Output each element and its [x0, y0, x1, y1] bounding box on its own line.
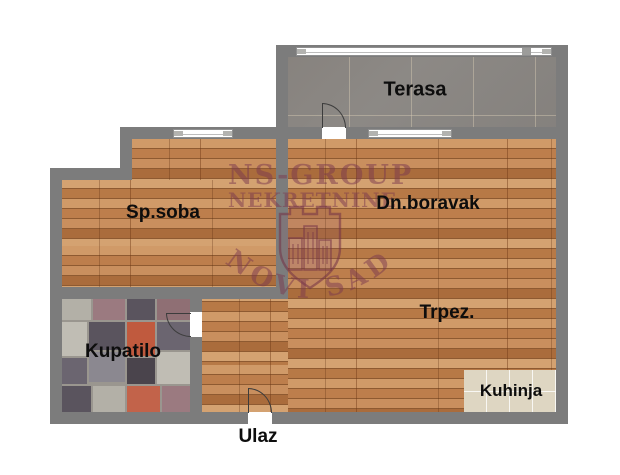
room-label-kupatilo: Kupatilo [85, 341, 161, 363]
room-label-terasa: Terasa [383, 79, 446, 102]
wall-bottom [50, 412, 568, 424]
wall-notch-horizontal [50, 168, 132, 180]
bath-tile [93, 386, 125, 412]
bath-tile [93, 299, 125, 320]
room-label-kuhinja: Kuhinja [480, 381, 542, 401]
bath-tile [162, 386, 190, 412]
window-mid-line [369, 134, 451, 135]
window-divider [522, 48, 531, 55]
terrace-window [296, 47, 552, 56]
bath-tile [62, 358, 87, 384]
bedroom-window [173, 129, 233, 138]
bath-tile [127, 386, 160, 412]
bath-tile [62, 322, 87, 356]
watermark-agency-name: NS-GROUP [228, 160, 394, 191]
floor-plan: NS-GROUP NEKRETNINE NOVI SAD Terasa Sp.s… [0, 0, 620, 475]
watermark-agency-sub: NEKRETNINE [228, 188, 394, 212]
terrace-door-opening [322, 127, 346, 139]
bath-tile [62, 299, 91, 320]
bath-tile [157, 352, 190, 384]
window-end-cap [174, 131, 183, 136]
window-end-cap [297, 49, 306, 54]
window-mid-line [297, 52, 551, 53]
entrance-door-opening [248, 412, 272, 424]
room-label-ulaz: Ulaz [238, 426, 277, 448]
room-label-dn-boravak: Dn.boravak [376, 193, 479, 215]
window-end-cap [442, 131, 451, 136]
living-room-window [368, 129, 452, 138]
wall-terrace-left [276, 45, 288, 139]
window-end-cap [369, 131, 378, 136]
room-label-trpez: Trpez. [420, 302, 475, 324]
wall-right [556, 45, 568, 424]
bath-tile [62, 386, 91, 412]
room-floor-hallway [202, 299, 288, 412]
window-end-cap [542, 49, 551, 54]
wall-bedroom-bath-divider [50, 287, 288, 299]
window-end-cap [223, 131, 232, 136]
room-label-sp-soba: Sp.soba [126, 202, 200, 224]
bathroom-door-opening [190, 312, 202, 337]
bath-tile [127, 299, 155, 320]
